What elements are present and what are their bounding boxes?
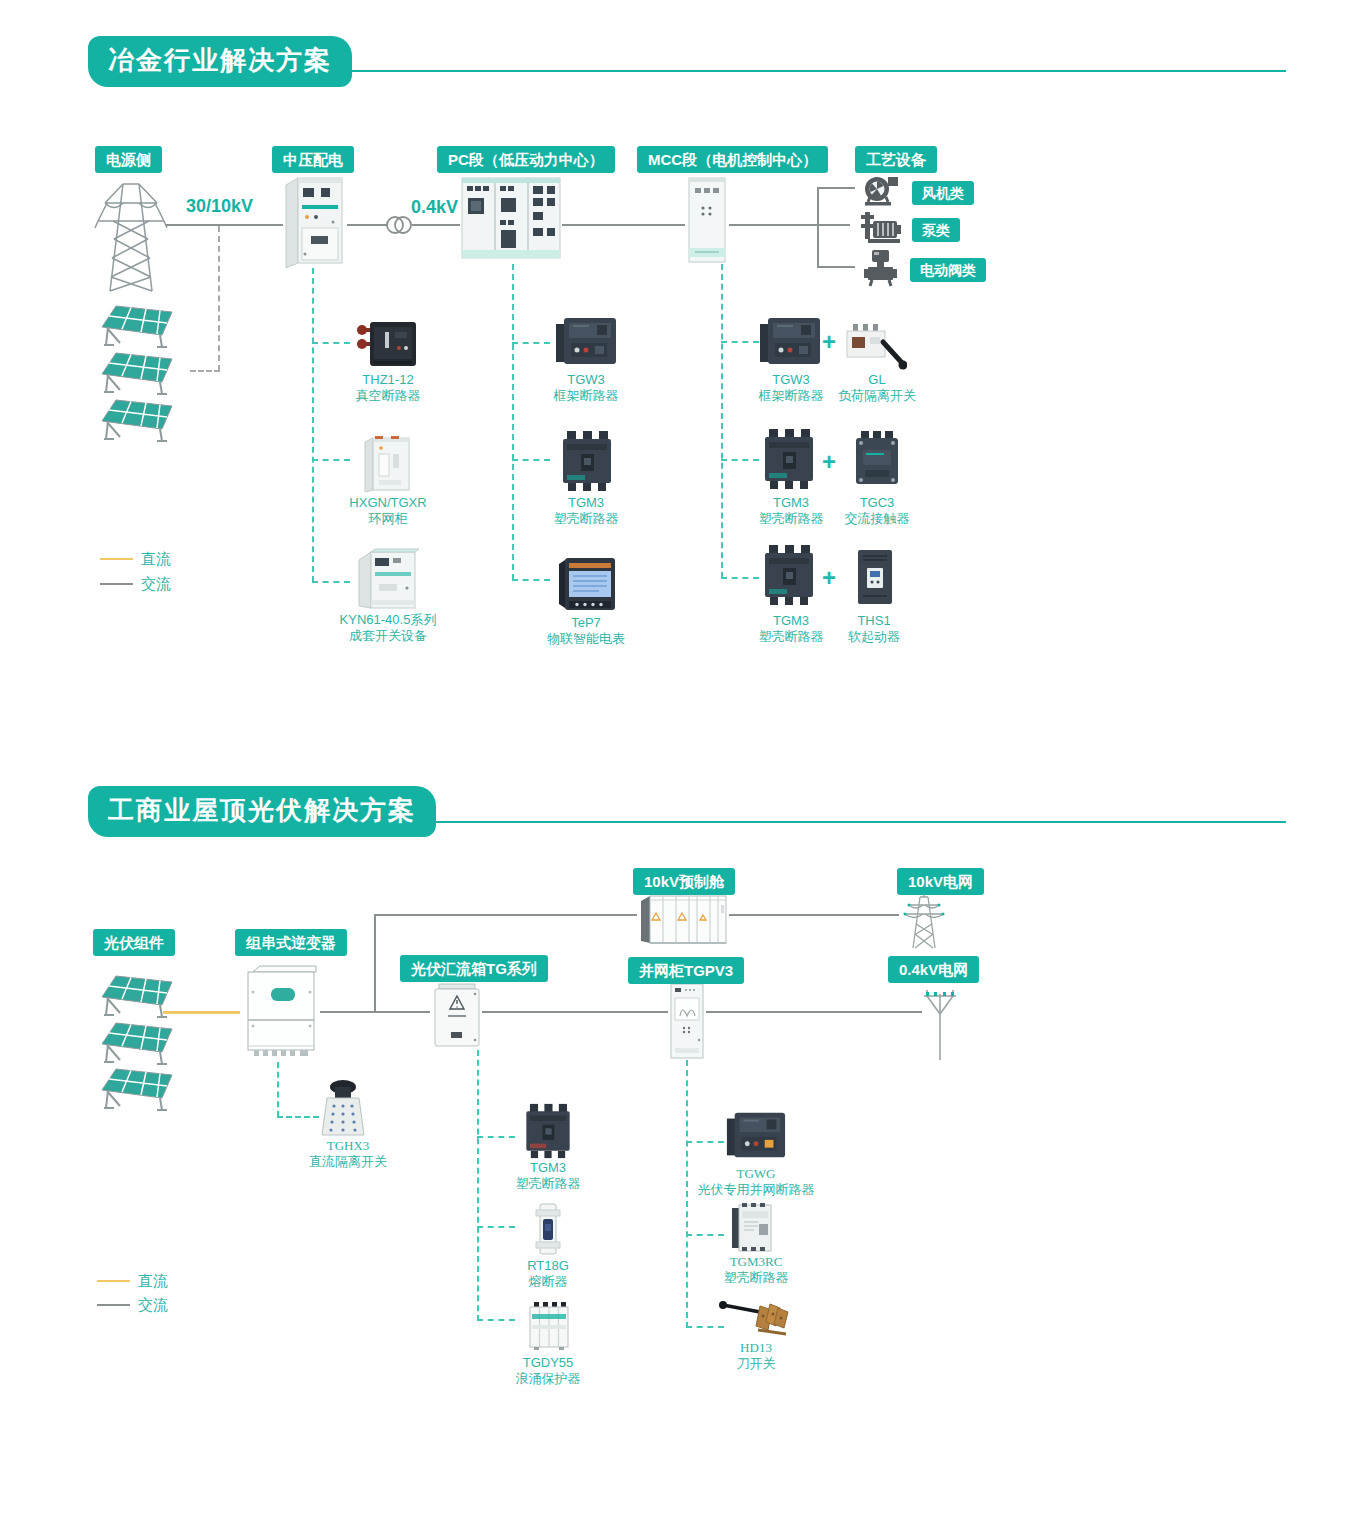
ac-riser-line (374, 914, 376, 1013)
product-branch-line (477, 1226, 515, 1228)
product-label: TGC3 交流接触器 (845, 495, 910, 527)
solar-panel-icon (100, 350, 178, 396)
solar-panel-icon (100, 303, 178, 349)
stage-badge-10kv-prefab-cabin: 10kV预制舱 (633, 868, 735, 895)
legend-dc-line (97, 1280, 130, 1282)
product-branch-line (512, 264, 514, 580)
product-branch-line (312, 581, 350, 583)
switchgear-cabinet-image (353, 546, 423, 610)
transmission-tower-icon (92, 178, 170, 292)
product-branch-line (686, 1141, 724, 1143)
product-label: TeP7 物联智能电表 (547, 615, 625, 647)
product-label: TGM3 塑壳断路器 (554, 495, 619, 527)
ring-main-unit-image (361, 434, 415, 492)
product-branch-line (477, 1319, 515, 1321)
mv-switchgear-image (283, 172, 347, 268)
product-label: TGW3 框架断路器 (759, 372, 824, 404)
stage-badge-04kv-grid: 0.4kV电网 (888, 956, 979, 983)
product-label: KYN61-40.5系列 成套开关设备 (340, 612, 437, 644)
legend-ac-label: 交流 (141, 576, 171, 591)
stage-badge-10kv-grid: 10kV电网 (897, 868, 984, 895)
legend-dc-line (100, 558, 133, 560)
product-branch-line (721, 459, 759, 461)
product-branch-line (512, 342, 550, 344)
pv-grid-breaker-image (724, 1108, 788, 1164)
pump-icon (856, 211, 904, 245)
load-isolation-switch-image (845, 322, 907, 374)
string-inverter-image (240, 962, 320, 1062)
product-branch-line (477, 1050, 479, 1321)
product-label: TGHX3 直流隔离开关 (309, 1138, 387, 1170)
product-branch-line (721, 264, 723, 578)
ac-line (166, 224, 283, 226)
product-label: TGDY55 浪涌保护器 (516, 1355, 581, 1387)
vacuum-circuit-breaker-image (353, 320, 421, 368)
motor-valve-icon (860, 249, 900, 287)
product-branch-line (721, 341, 759, 343)
prefab-cabin-image (637, 891, 729, 947)
stage-badge-mv-distribution: 中压配电 (272, 146, 354, 173)
section1-title-rule (330, 70, 1286, 72)
stage-badge-grid-connection-cabinet: 并网柜TGPV3 (628, 957, 744, 984)
voltage-label-incoming: 30/10kV (186, 196, 253, 217)
plus-sign: + (822, 566, 836, 590)
ac-line (374, 914, 637, 916)
ac-line (412, 224, 460, 226)
product-branch-line (686, 1060, 688, 1328)
product-label: HXGN/TGXR 环网柜 (349, 495, 426, 527)
product-branch-line (512, 459, 550, 461)
04kv-grid-pole-icon (922, 982, 958, 1062)
product-label: TGM3 塑壳断路器 (759, 613, 824, 645)
ac-line (729, 914, 899, 916)
fan-icon (860, 174, 904, 206)
molded-case-breaker-image (759, 428, 819, 490)
plus-sign: + (822, 450, 836, 474)
product-label: TGWG 光伏专用并网断路器 (698, 1166, 815, 1198)
bracket-line (817, 266, 855, 268)
air-circuit-breaker-image (757, 316, 823, 368)
product-label: TGM3RC 塑壳断路器 (724, 1254, 789, 1286)
product-label: THS1 软起动器 (848, 613, 900, 645)
product-label: TGW3 框架断路器 (554, 372, 619, 404)
bracket-line (817, 187, 819, 268)
legend-ac-line (100, 583, 133, 585)
pv-combiner-box-image (430, 982, 482, 1050)
mcc-cabinet-image (685, 174, 729, 266)
ac-contactor-image (851, 430, 903, 488)
product-label: RT18G 熔断器 (527, 1258, 569, 1290)
bracket-line (817, 187, 855, 189)
legend-dc-label: 直流 (141, 551, 171, 566)
ac-line (706, 1011, 922, 1013)
product-branch-line (721, 577, 759, 579)
air-circuit-breaker-image (553, 316, 619, 368)
stage-badge-process-equipment: 工艺设备 (855, 146, 937, 173)
surge-protector-image (526, 1300, 572, 1352)
smart-meter-image (555, 556, 619, 612)
product-branch-line (312, 342, 350, 344)
grid-connection-cabinet-image (668, 982, 706, 1060)
section2-title: 工商业屋顶光伏解决方案 (88, 786, 436, 837)
plus-sign: + (822, 330, 836, 354)
10kv-grid-tower-icon (899, 890, 949, 950)
product-branch-line (277, 1062, 279, 1117)
residual-current-breaker-image (728, 1202, 778, 1254)
ac-line (482, 1011, 668, 1013)
product-label: THZ1-12 真空断路器 (356, 372, 421, 404)
product-branch-line (477, 1136, 515, 1138)
pc-switchgear-image (460, 170, 562, 264)
legend-ac-line (97, 1304, 130, 1306)
solar-panel-icon (100, 397, 178, 443)
stage-badge-pv-modules: 光伏组件 (93, 929, 175, 956)
legend-ac-label: 交流 (138, 1297, 168, 1312)
voltage-label-lv: 0.4kV (411, 197, 458, 218)
pv-dashed-connector (218, 226, 220, 371)
ac-line (562, 224, 685, 226)
product-label: GL 负荷隔离开关 (838, 372, 916, 404)
stage-badge-pv-combiner-box: 光伏汇流箱TG系列 (400, 955, 548, 982)
product-label: HD13 刀开关 (737, 1340, 776, 1372)
product-label: TGM3 塑壳断路器 (759, 495, 824, 527)
product-branch-line (277, 1116, 319, 1118)
solar-panel-icon (100, 973, 178, 1019)
equipment-badge-motor-valves: 电动阀类 (910, 258, 986, 282)
equipment-badge-fans: 风机类 (912, 181, 974, 205)
pv-dashed-connector (190, 370, 220, 372)
fuse-image (534, 1202, 562, 1256)
product-branch-line (312, 268, 314, 582)
solar-panel-icon (100, 1020, 178, 1066)
product-label: TGM3 塑壳断路器 (516, 1160, 581, 1192)
ac-line (347, 224, 387, 226)
soft-starter-image (853, 548, 897, 606)
stage-badge-mcc-section: MCC段（电机控制中心） (637, 146, 828, 173)
stage-badge-power-side: 电源侧 (95, 146, 162, 173)
molded-case-breaker-image (759, 544, 819, 606)
solar-panel-icon (100, 1066, 178, 1112)
ac-line (729, 224, 817, 226)
product-branch-line (312, 459, 350, 461)
stage-badge-pc-section: PC段（低压动力中心） (437, 146, 615, 173)
product-branch-line (512, 579, 550, 581)
legend-dc-label: 直流 (138, 1273, 168, 1288)
molded-case-breaker-image (520, 1103, 576, 1159)
section1-title: 冶金行业解决方案 (88, 36, 352, 87)
stage-badge-string-inverter: 组串式逆变器 (235, 929, 347, 956)
knife-switch-image (716, 1298, 792, 1338)
solution-diagram-page: 冶金行业解决方案 电源侧 中压配电 PC段（低压动力中心） MCC段（电机控制中… (0, 0, 1350, 1528)
transformer-symbol (385, 213, 413, 237)
molded-case-breaker-image (557, 430, 617, 492)
equipment-badge-pumps: 泵类 (912, 218, 960, 242)
bracket-line (817, 224, 850, 226)
product-branch-line (686, 1234, 724, 1236)
section2-title-rule (400, 821, 1286, 823)
dc-isolator-switch-image (320, 1078, 366, 1136)
